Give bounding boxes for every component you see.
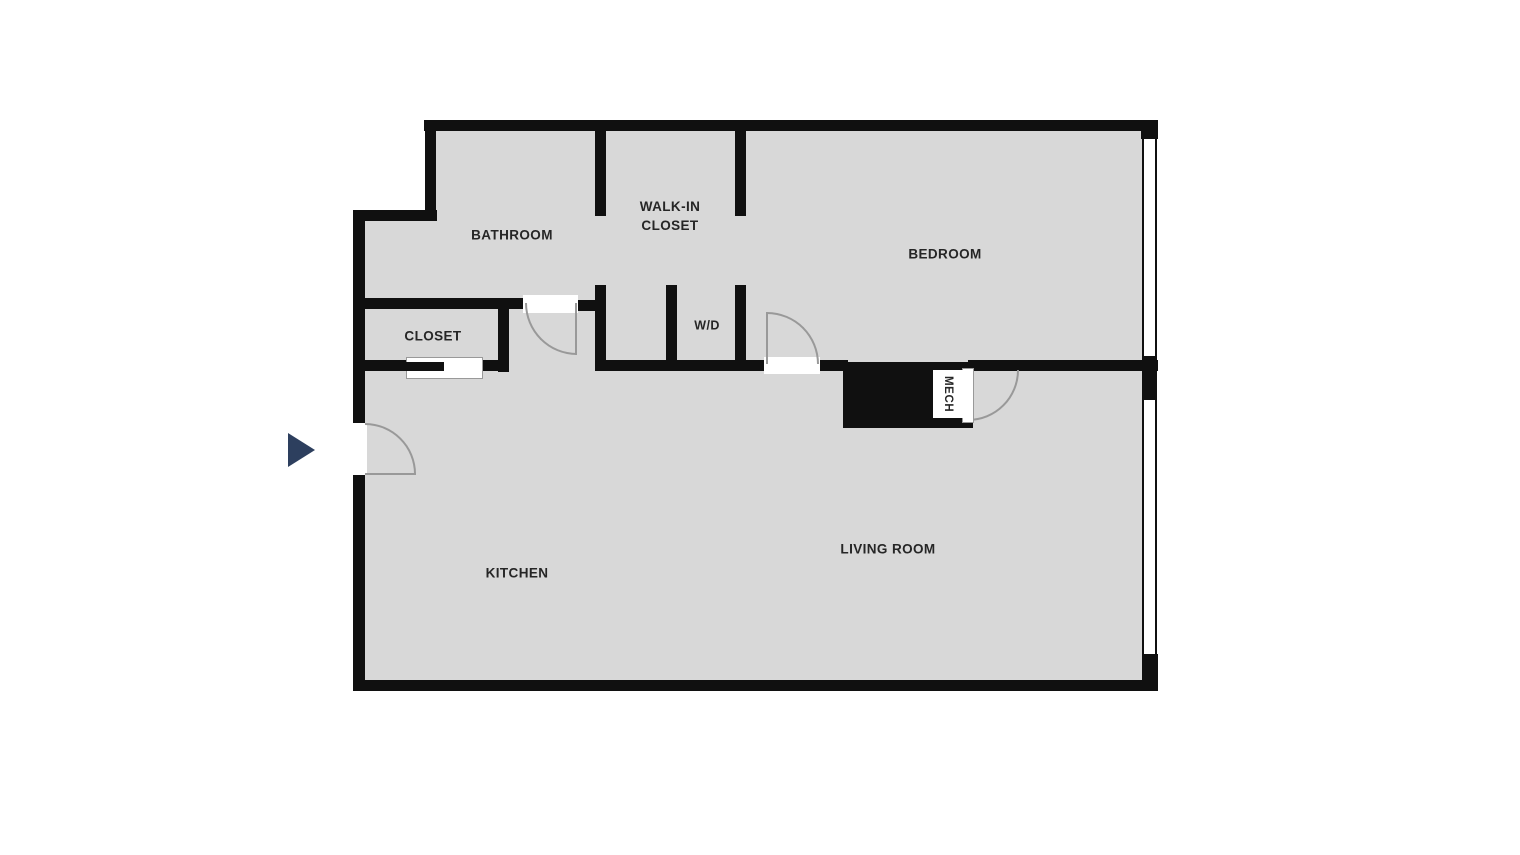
wall-right-bottom: [1142, 654, 1158, 691]
room-label-wd: W/D: [694, 317, 720, 336]
bedroom-door-leaf: [766, 312, 768, 364]
bathroom-door-leaf: [575, 303, 577, 355]
window-bedroom: [1142, 138, 1157, 357]
walk-in-closet-line1: WALK-IN: [640, 197, 701, 216]
wall-closet-bottom-left: [353, 360, 407, 371]
wall-hall-stub-left: [595, 285, 606, 371]
wall-bathroom-walkin-divider: [595, 126, 606, 216]
entry-door-leaf: [365, 473, 416, 475]
entry-arrow-icon: [288, 433, 315, 467]
wall-walkin-bedroom-divider: [735, 126, 746, 216]
room-label-mech: MECH: [942, 376, 954, 412]
closet-pocket-door-stub: [406, 362, 444, 371]
mech-door-leaf: [962, 368, 974, 423]
wall-left-b: [353, 474, 365, 691]
room-label-bedroom: BEDROOM: [908, 245, 981, 264]
wall-top: [424, 120, 1157, 131]
wall-wd-right: [735, 285, 746, 371]
wall-step: [353, 210, 437, 221]
wall-hall-wd-bottom: [595, 360, 767, 371]
wall-left-upper: [425, 120, 436, 221]
room-label-closet: CLOSET: [404, 327, 461, 346]
floor-plan: BATHROOM WALK-IN CLOSET BEDROOM CLOSET W…: [0, 0, 1520, 855]
wall-right-top-cap: [1141, 120, 1158, 139]
room-label-walk-in-closet: WALK-IN CLOSET: [640, 197, 701, 235]
window-living-room: [1142, 399, 1157, 655]
wall-bathroom-door-stub: [577, 300, 601, 311]
room-label-kitchen: KITCHEN: [486, 564, 549, 583]
walk-in-closet-line2: CLOSET: [640, 216, 701, 235]
wall-wd-left: [666, 285, 677, 371]
room-label-living-room: LIVING ROOM: [840, 540, 935, 559]
wall-left-a: [353, 210, 365, 424]
room-label-mech-box: MECH: [933, 370, 963, 418]
wall-closet-bottom-right: [482, 360, 509, 371]
wall-bottom: [353, 680, 1158, 691]
room-label-bathroom: BATHROOM: [471, 226, 553, 245]
